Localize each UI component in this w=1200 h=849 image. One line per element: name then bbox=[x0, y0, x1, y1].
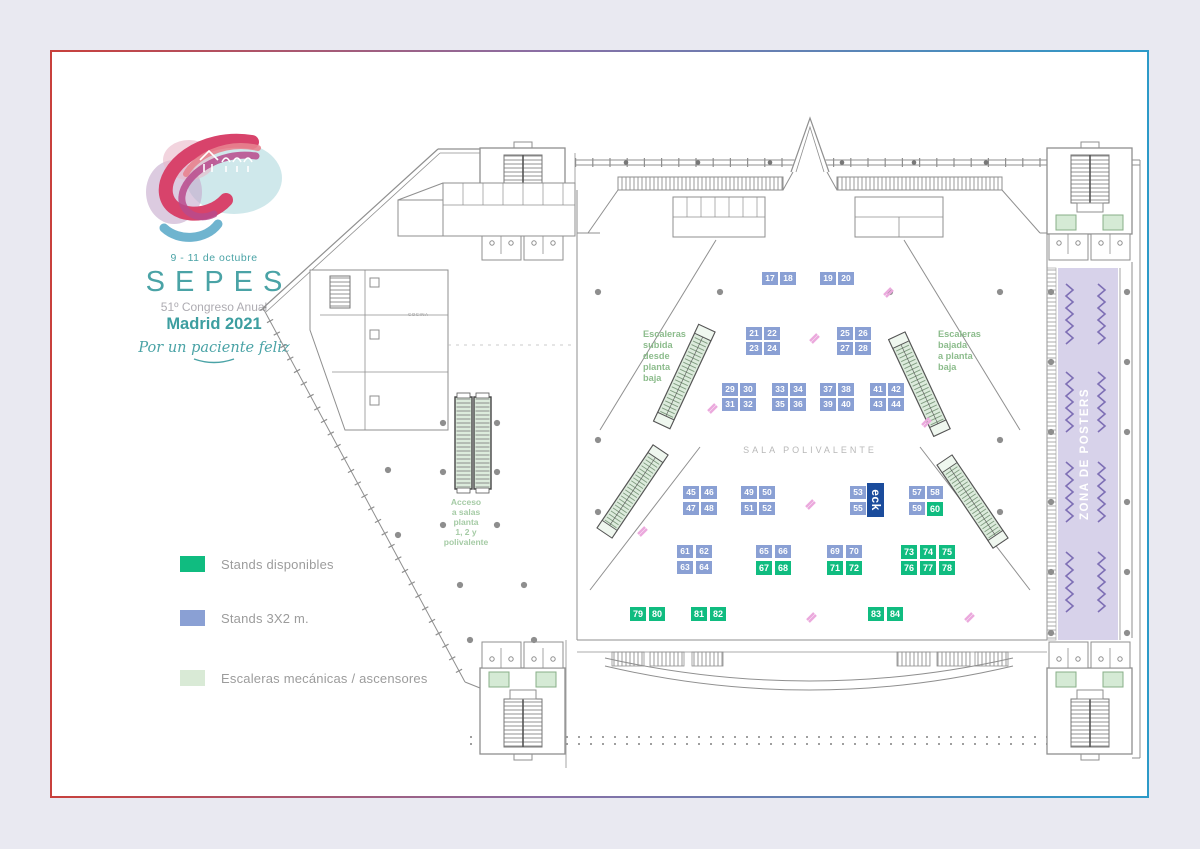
legend-label: Escaleras mecánicas / ascensores bbox=[221, 671, 428, 686]
floorplan-card: 9 - 11 de octubre SEPES 51º Congreso Anu… bbox=[50, 50, 1149, 798]
stand-63: 63 bbox=[677, 561, 693, 574]
stand-44: 44 bbox=[888, 398, 904, 411]
stand-59: 59 bbox=[909, 502, 925, 515]
stand-69: 69 bbox=[827, 545, 843, 558]
stand-31: 31 bbox=[722, 398, 738, 411]
stand-72: 72 bbox=[846, 561, 862, 575]
stand-19: 19 bbox=[820, 272, 836, 285]
stand-53: 53 bbox=[850, 486, 866, 499]
stand-60: 60 bbox=[927, 502, 943, 516]
stand-79: 79 bbox=[630, 607, 646, 621]
stand-70: 70 bbox=[846, 545, 862, 558]
stand-eck: eck bbox=[867, 483, 884, 517]
stand-73: 73 bbox=[901, 545, 917, 559]
stand-33: 33 bbox=[772, 383, 788, 396]
stand-39: 39 bbox=[820, 398, 836, 411]
stand-17: 17 bbox=[762, 272, 778, 285]
logo-dates: 9 - 11 de octubre bbox=[124, 252, 304, 264]
stand-78: 78 bbox=[939, 561, 955, 575]
stand-22: 22 bbox=[764, 327, 780, 340]
stand-61: 61 bbox=[677, 545, 693, 558]
stand-37: 37 bbox=[820, 383, 836, 396]
logo-title: SEPES bbox=[124, 266, 304, 299]
eck-logo: eck bbox=[869, 489, 883, 511]
stand-57: 57 bbox=[909, 486, 925, 499]
tagline-flourish bbox=[192, 357, 236, 365]
stand-18: 18 bbox=[780, 272, 796, 285]
sepes-logo: 9 - 11 de octubre SEPES 51º Congreso Anu… bbox=[124, 130, 304, 365]
stand-30: 30 bbox=[740, 383, 756, 396]
page-background: 9 - 11 de octubre SEPES 51º Congreso Anu… bbox=[0, 0, 1200, 849]
stand-62: 62 bbox=[696, 545, 712, 558]
stand-24: 24 bbox=[764, 342, 780, 355]
stand-23: 23 bbox=[746, 342, 762, 355]
stand-64: 64 bbox=[696, 561, 712, 574]
stand-25: 25 bbox=[837, 327, 853, 340]
stand-35: 35 bbox=[772, 398, 788, 411]
stand-52: 52 bbox=[759, 502, 775, 515]
stand-49: 49 bbox=[741, 486, 757, 499]
stand-83: 83 bbox=[868, 607, 884, 621]
sepes-logo-artwork bbox=[134, 130, 294, 252]
stand-65: 65 bbox=[756, 545, 772, 558]
legend-label: Stands 3X2 m. bbox=[221, 611, 309, 626]
stand-32: 32 bbox=[740, 398, 756, 411]
stand-67: 67 bbox=[756, 561, 772, 575]
stand-77: 77 bbox=[920, 561, 936, 575]
stand-42: 42 bbox=[888, 383, 904, 396]
stand-20: 20 bbox=[838, 272, 854, 285]
legend-item-available: Stands disponibles bbox=[180, 556, 334, 572]
stand-43: 43 bbox=[870, 398, 886, 411]
stand-41: 41 bbox=[870, 383, 886, 396]
stand-68: 68 bbox=[775, 561, 791, 575]
legend-label: Stands disponibles bbox=[221, 557, 334, 572]
stand-40: 40 bbox=[838, 398, 854, 411]
stand-71: 71 bbox=[827, 561, 843, 575]
stand-38: 38 bbox=[838, 383, 854, 396]
stand-51: 51 bbox=[741, 502, 757, 515]
stand-76: 76 bbox=[901, 561, 917, 575]
legend-swatch-1 bbox=[180, 610, 205, 626]
stand-21: 21 bbox=[746, 327, 762, 340]
legend-swatch-0 bbox=[180, 556, 205, 572]
legend-item-3x2: Stands 3X2 m. bbox=[180, 610, 309, 626]
logo-congress: 51º Congreso Anual bbox=[124, 300, 304, 314]
stand-58: 58 bbox=[927, 486, 943, 499]
stand-34: 34 bbox=[790, 383, 806, 396]
stand-84: 84 bbox=[887, 607, 903, 621]
stand-74: 74 bbox=[920, 545, 936, 559]
stand-50: 50 bbox=[759, 486, 775, 499]
stand-29: 29 bbox=[722, 383, 738, 396]
stand-27: 27 bbox=[837, 342, 853, 355]
stand-75: 75 bbox=[939, 545, 955, 559]
stand-82: 82 bbox=[710, 607, 726, 621]
stand-80: 80 bbox=[649, 607, 665, 621]
stand-48: 48 bbox=[701, 502, 717, 515]
stand-66: 66 bbox=[775, 545, 791, 558]
stand-81: 81 bbox=[691, 607, 707, 621]
legend-swatch-2 bbox=[180, 670, 205, 686]
stand-28: 28 bbox=[855, 342, 871, 355]
stand-45: 45 bbox=[683, 486, 699, 499]
stand-26: 26 bbox=[855, 327, 871, 340]
logo-city: Madrid 2021 bbox=[124, 315, 304, 334]
stand-46: 46 bbox=[701, 486, 717, 499]
stand-36: 36 bbox=[790, 398, 806, 411]
legend-item-escalators: Escaleras mecánicas / ascensores bbox=[180, 670, 428, 686]
logo-tagline: Por un paciente feliz bbox=[124, 340, 304, 356]
stand-47: 47 bbox=[683, 502, 699, 515]
stand-55: 55 bbox=[850, 502, 866, 515]
